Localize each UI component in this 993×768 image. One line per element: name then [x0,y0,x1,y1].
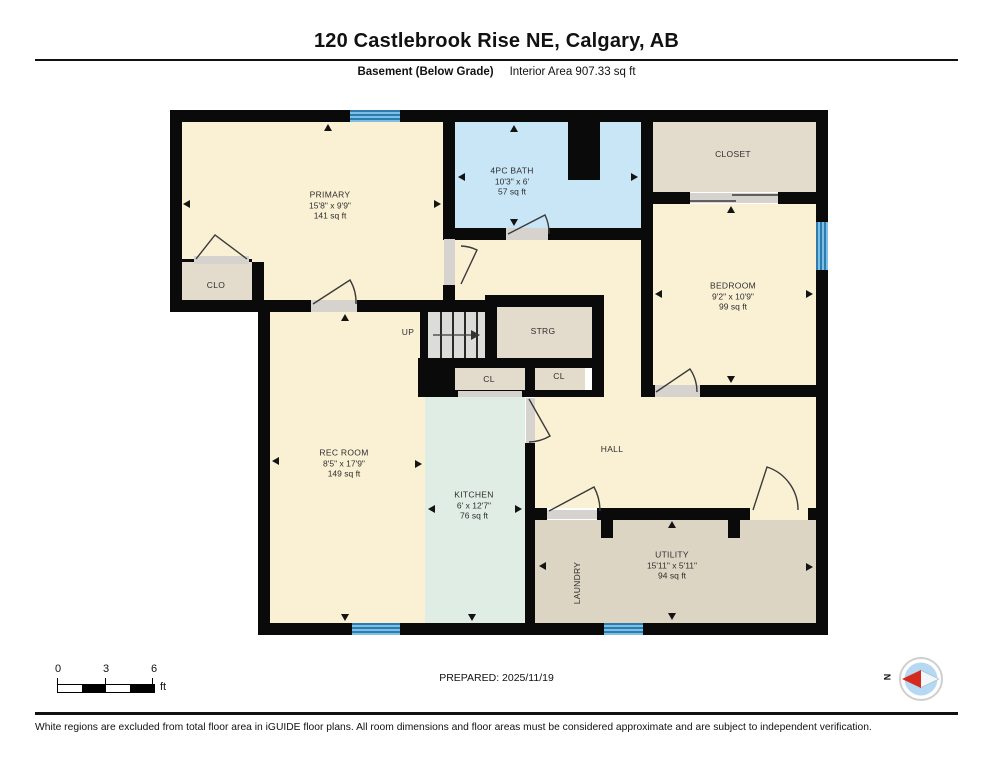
wall [778,192,816,204]
wall [357,300,490,312]
door-threshold [311,300,357,312]
floorplan: PRIMARY 15'8" x 9'9" 141 sq ft 4PC BATH … [0,0,993,768]
dimension-arrow [668,521,676,528]
door-threshold [526,398,535,443]
wall [170,110,182,312]
room-fill-hall-door-patch [750,508,808,520]
wall [252,262,264,312]
north-label: N [882,674,892,681]
compass-needle-icon [894,653,948,705]
dimension-arrow [655,290,662,298]
dimension-arrow [727,206,735,213]
dimension-arrow [510,219,518,226]
wall [601,520,613,538]
wall [816,110,828,222]
dimension-arrow [428,505,435,513]
wall [643,623,828,635]
stair-tread [440,312,442,358]
room-fill-upper-hall [443,240,641,302]
window [352,623,400,635]
dimension-arrow [341,614,349,621]
wall [400,110,828,122]
room-label-cl1: CL [483,374,494,385]
room-fill-hall-strip [604,302,641,397]
dimension-arrow [415,460,422,468]
door-threshold [690,193,778,203]
room-label-bedroom: BEDROOM 9'2" x 10'9" 99 sq ft [710,280,756,312]
wall [641,385,655,397]
room-label-clo: CLO [207,280,225,291]
door-threshold [506,228,548,240]
wall [597,508,750,520]
dimension-arrow [510,125,518,132]
room-label-hall: HALL [601,444,623,455]
wall [455,358,592,368]
door-threshold [458,391,522,397]
room-label-closet: CLOSET [715,149,751,160]
wall [418,358,455,397]
disclaimer-text: White regions are excluded from total fl… [35,722,872,733]
dimension-arrow [515,505,522,513]
dimension-arrow [668,613,676,620]
dimension-arrow [727,376,735,383]
dimension-arrow [324,124,332,131]
door-threshold [194,256,249,264]
wall [548,228,641,240]
room-fill-bath [455,122,641,228]
room-label-kitchen: KITCHEN 6' x 12'7" 76 sq ft [454,489,493,521]
wall [258,623,352,635]
wall [653,192,690,204]
prepared-date: PREPARED: 2025/11/19 [0,672,993,684]
wall [525,443,535,623]
room-label-laundry: LAUNDRY [572,562,583,605]
door-threshold [444,239,455,285]
wall [816,270,828,635]
stair-tread [476,312,478,358]
wall [700,385,816,397]
wall [170,300,311,312]
dimension-arrow [806,563,813,571]
dimension-arrow [806,290,813,298]
wall [525,508,547,520]
room-label-rec: REC ROOM 8'5" x 17'9" 149 sq ft [319,447,368,479]
wall [808,508,816,520]
dimension-arrow [434,200,441,208]
dimension-arrow [183,200,190,208]
scale-bar-segments [57,684,155,693]
dimension-arrow [458,173,465,181]
wall [420,312,428,358]
wall [485,295,604,307]
window [350,110,400,122]
stairs-up-label: UP [402,327,414,338]
stair-tread [464,312,466,358]
dimension-arrow [341,314,349,321]
wall [568,122,600,180]
wall [485,295,497,358]
dimension-arrow [631,173,638,181]
room-label-bath: 4PC BATH 10'3" x 6' 57 sq ft [490,165,533,197]
dimension-arrow [272,457,279,465]
dimension-arrow [539,562,546,570]
window [816,222,828,270]
door-threshold [547,510,597,519]
door-threshold [655,385,700,397]
wall [170,110,350,122]
room-label-primary: PRIMARY 15'8" x 9'9" 141 sq ft [309,189,351,221]
wall [592,295,604,397]
wall [443,285,455,312]
dimension-arrow [468,614,476,621]
window [604,623,643,635]
room-label-utility: UTILITY 15'11" x 5'11" 94 sq ft [647,549,697,581]
room-label-strg: STRG [531,326,556,337]
footer-divider [35,712,958,715]
room-fill-hall [535,397,816,508]
wall [400,623,604,635]
north-compass: N [884,653,948,705]
wall [728,520,740,538]
room-label-cl2: CL [553,371,564,382]
wall [443,110,455,238]
wall [258,300,270,635]
stair-tread [452,312,454,358]
wall [641,110,653,397]
